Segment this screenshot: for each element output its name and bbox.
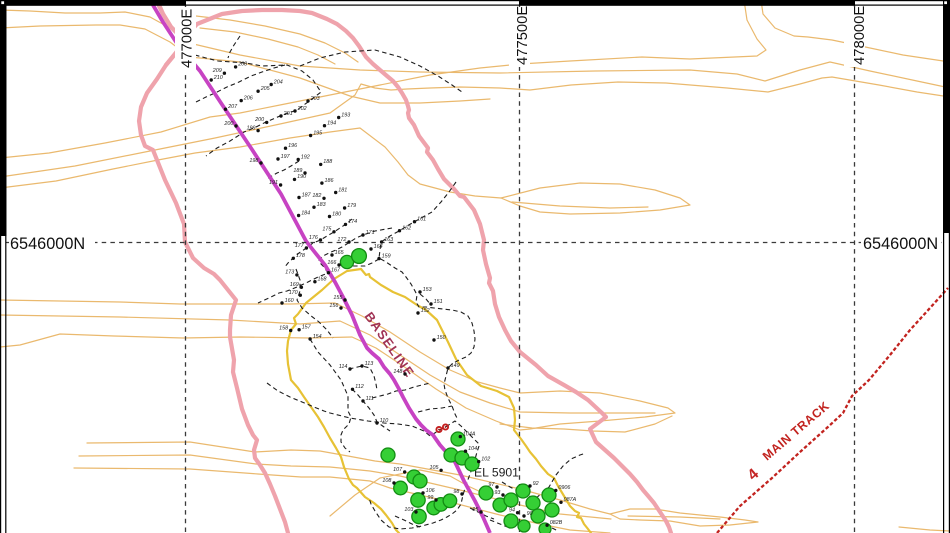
svg-text:113: 113 — [365, 361, 374, 367]
svg-text:477500E: 477500E — [515, 6, 531, 65]
svg-text:159: 159 — [382, 253, 391, 259]
svg-text:196: 196 — [288, 143, 297, 149]
svg-text:158: 158 — [279, 325, 288, 331]
svg-text:107: 107 — [393, 467, 403, 473]
svg-text:478000E: 478000E — [852, 6, 868, 65]
svg-text:149: 149 — [451, 363, 460, 369]
svg-text:178: 178 — [296, 253, 305, 259]
svg-text:179: 179 — [347, 203, 356, 209]
svg-text:186: 186 — [325, 178, 334, 184]
svg-text:198: 198 — [249, 158, 258, 164]
svg-text:110: 110 — [380, 418, 389, 424]
svg-text:181: 181 — [338, 187, 347, 193]
svg-text:203: 203 — [310, 96, 320, 102]
svg-text:114: 114 — [339, 364, 348, 370]
svg-text:160: 160 — [285, 298, 294, 304]
svg-text:92: 92 — [533, 481, 539, 487]
svg-text:194: 194 — [327, 121, 336, 127]
svg-text:192: 192 — [301, 154, 310, 160]
svg-text:98: 98 — [453, 489, 459, 495]
svg-text:202: 202 — [297, 106, 307, 112]
svg-text:201: 201 — [283, 111, 293, 117]
svg-text:164: 164 — [374, 244, 383, 250]
svg-text:0906: 0906 — [558, 485, 570, 491]
svg-text:104A: 104A — [463, 431, 476, 437]
svg-text:190: 190 — [297, 174, 306, 180]
svg-text:165: 165 — [335, 250, 345, 256]
svg-text:157: 157 — [302, 325, 312, 331]
svg-text:93: 93 — [494, 490, 500, 496]
svg-text:90: 90 — [527, 511, 533, 517]
svg-text:200: 200 — [223, 121, 233, 127]
svg-text:108: 108 — [382, 478, 391, 484]
svg-text:189: 189 — [293, 168, 302, 174]
svg-text:148: 148 — [393, 369, 402, 375]
svg-text:175: 175 — [322, 227, 332, 233]
svg-text:172: 172 — [337, 237, 346, 243]
svg-text:6546000N: 6546000N — [10, 235, 85, 253]
svg-text:161: 161 — [417, 217, 426, 223]
svg-text:94: 94 — [509, 508, 515, 514]
svg-text:195: 195 — [313, 130, 323, 136]
svg-text:EL 5901: EL 5901 — [474, 466, 519, 480]
svg-text:152: 152 — [421, 308, 430, 314]
svg-text:6546000N: 6546000N — [863, 235, 938, 253]
svg-text:99: 99 — [427, 495, 433, 501]
svg-text:209: 209 — [212, 68, 222, 74]
svg-text:187: 187 — [302, 192, 312, 198]
svg-text:204: 204 — [273, 79, 283, 85]
svg-text:207: 207 — [227, 104, 238, 110]
svg-text:208: 208 — [237, 62, 247, 68]
svg-text:166: 166 — [327, 260, 336, 266]
svg-text:168: 168 — [318, 277, 327, 283]
svg-text:171: 171 — [366, 230, 375, 236]
svg-text:163: 163 — [384, 237, 393, 243]
svg-text:106: 106 — [426, 488, 435, 494]
svg-text:151: 151 — [434, 299, 443, 305]
svg-text:199: 199 — [247, 125, 256, 131]
svg-text:184: 184 — [301, 210, 310, 216]
svg-text:193: 193 — [341, 112, 350, 118]
svg-text:95: 95 — [472, 507, 479, 513]
svg-text:082B: 082B — [550, 520, 563, 526]
svg-text:188: 188 — [323, 159, 332, 165]
svg-text:200: 200 — [254, 117, 264, 123]
svg-text:174: 174 — [348, 219, 357, 225]
svg-text:169: 169 — [290, 282, 299, 288]
svg-text:103: 103 — [404, 507, 413, 513]
svg-text:156: 156 — [329, 303, 338, 309]
svg-text:180: 180 — [332, 211, 341, 217]
svg-text:111: 111 — [366, 396, 374, 402]
svg-text:170: 170 — [289, 290, 298, 296]
svg-text:182: 182 — [312, 193, 321, 199]
svg-text:167: 167 — [331, 268, 341, 274]
svg-text:150: 150 — [437, 335, 446, 341]
svg-text:183: 183 — [317, 202, 326, 208]
svg-text:206: 206 — [243, 95, 253, 101]
svg-text:210: 210 — [213, 75, 223, 81]
svg-text:97: 97 — [488, 482, 495, 488]
svg-text:112: 112 — [355, 384, 364, 390]
svg-text:197: 197 — [281, 154, 291, 160]
svg-text:177: 177 — [295, 243, 305, 249]
svg-text:102: 102 — [481, 456, 490, 462]
svg-text:205: 205 — [260, 86, 271, 92]
svg-text:191: 191 — [269, 180, 278, 186]
svg-text:477000E: 477000E — [180, 9, 196, 68]
svg-text:173: 173 — [285, 270, 294, 276]
svg-text:104: 104 — [468, 446, 477, 452]
svg-text:153: 153 — [423, 287, 432, 293]
svg-text:155: 155 — [333, 295, 343, 301]
svg-text:087A: 087A — [564, 497, 577, 503]
svg-text:176: 176 — [309, 235, 318, 241]
svg-text:105: 105 — [430, 465, 440, 471]
svg-text:154: 154 — [313, 334, 322, 340]
svg-text:162: 162 — [402, 226, 411, 232]
